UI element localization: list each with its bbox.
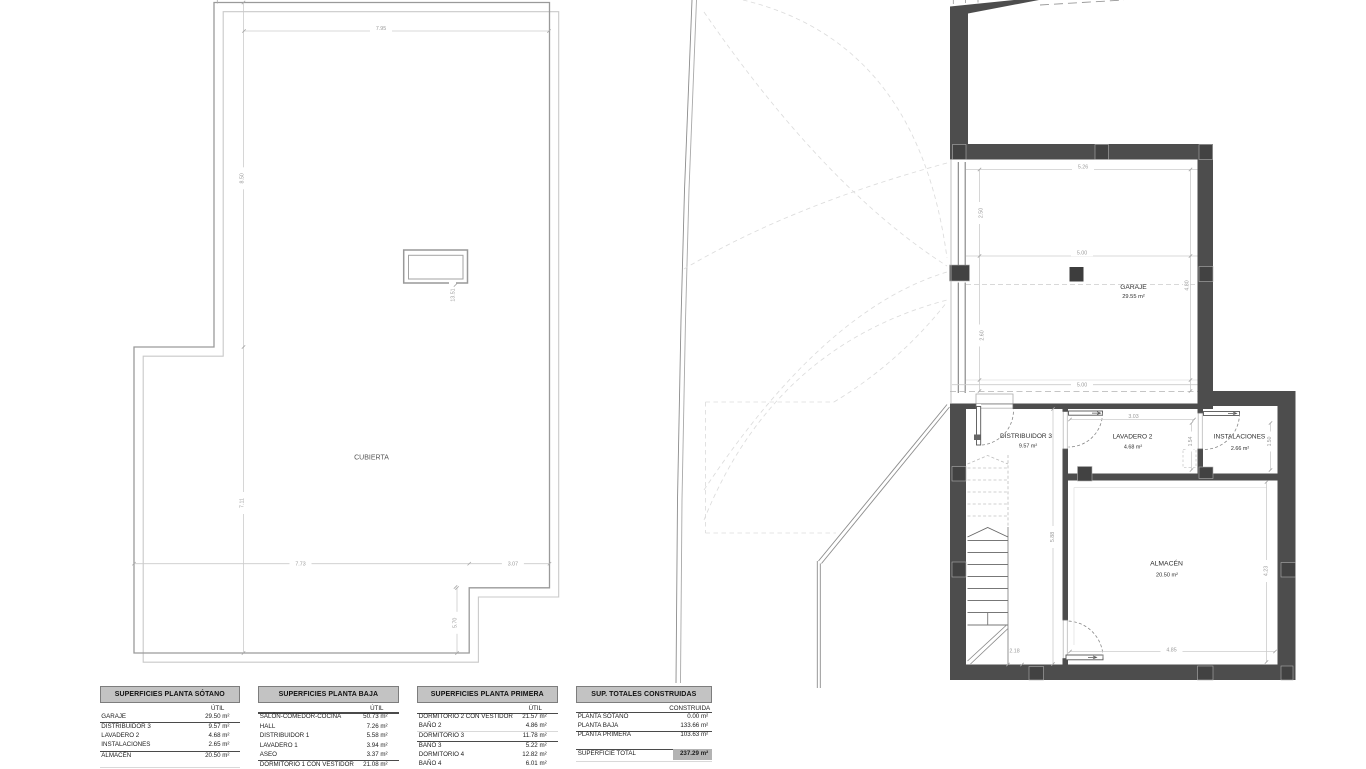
svg-text:5.00: 5.00 [1077,383,1087,389]
svg-text:8.50: 8.50 [240,173,246,183]
svg-text:7.73: 7.73 [295,562,305,568]
svg-text:9.57 m²: 9.57 m² [1019,444,1037,450]
svg-text:2.60: 2.60 [980,330,986,340]
svg-text:13.51: 13.51 [451,288,457,301]
svg-text:CUBIERTA: CUBIERTA [354,455,389,462]
svg-text:5.00: 5.00 [1077,251,1087,257]
svg-text:4.23: 4.23 [1264,566,1270,576]
svg-text:7.95: 7.95 [376,26,386,32]
svg-text:4.80: 4.80 [1185,280,1191,290]
svg-text:5.26: 5.26 [1078,165,1088,171]
svg-text:GARAJE: GARAJE [1120,284,1147,291]
svg-text:5.70: 5.70 [453,618,459,628]
svg-text:4.68 m²: 4.68 m² [1124,445,1142,451]
svg-text:7.11: 7.11 [240,498,246,508]
svg-text:1.50: 1.50 [1267,436,1273,446]
svg-text:2.50: 2.50 [979,208,985,218]
svg-text:INSTALACIONES: INSTALACIONES [1214,434,1266,441]
svg-text:29.55 m²: 29.55 m² [1122,294,1145,300]
svg-text:LAVADERO 2: LAVADERO 2 [1113,434,1153,441]
svg-text:DISTRIBUIDOR 3: DISTRIBUIDOR 3 [1000,433,1052,440]
svg-text:3.03: 3.03 [1128,414,1138,420]
svg-text:4.85: 4.85 [1166,647,1176,653]
svg-text:2.66 m²: 2.66 m² [1231,446,1249,452]
svg-text:1.54: 1.54 [1188,436,1194,446]
svg-text:2.18: 2.18 [1009,649,1019,655]
svg-text:5.88: 5.88 [1050,532,1056,542]
svg-text:20.50 m²: 20.50 m² [1156,573,1178,579]
svg-text:3.07: 3.07 [508,562,518,568]
svg-text:ALMACÉN: ALMACÉN [1150,559,1183,568]
